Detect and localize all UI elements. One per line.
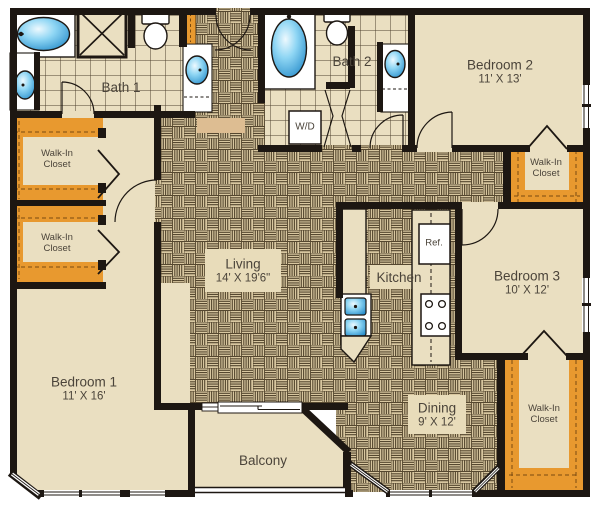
bedroom1-label: Bedroom 1 11' X 16' [51, 374, 117, 403]
refrigerator-label: Ref. [425, 238, 442, 249]
bathtub-2 [272, 19, 307, 77]
kitchen-label: Kitchen [376, 270, 421, 286]
bath1-label: Bath 1 [101, 80, 140, 96]
bathtub-1 [18, 18, 70, 51]
washer-dryer-label: W/D [295, 122, 314, 133]
threshold-strip [197, 118, 245, 133]
balcony-floor [188, 410, 348, 492]
balcony-label: Balcony [239, 453, 287, 469]
living-label: Living 14' X 19'6" [216, 256, 271, 285]
entry-threshold [216, 8, 250, 16]
closet-left-lower-label: Walk-In Closet [29, 233, 85, 255]
bedroom3-label: Bedroom 3 10' X 12' [494, 268, 560, 297]
closet-bedroom3-label: Walk-In Closet [516, 404, 572, 426]
tub-1-faucet [19, 32, 23, 36]
sink-bath2 [385, 51, 405, 78]
balcony-sliding-door [218, 402, 302, 413]
kitchen-counter-left [341, 209, 366, 295]
sink-bath1-left [15, 71, 35, 99]
hall-floor [345, 145, 510, 209]
dining-label: Dining 9' X 12' [418, 400, 456, 429]
toilet-2-bowl [327, 21, 348, 45]
bath2-label: Bath 2 [332, 54, 371, 70]
bedroom1-window-2 [130, 490, 165, 497]
sink-bath1-right [186, 56, 208, 84]
toilet-1-bowl [144, 23, 167, 49]
closet-left-upper-label: Walk-In Closet [29, 149, 85, 171]
closet-bedroom2-label: Walk-In Closet [518, 158, 574, 180]
stove [421, 294, 450, 336]
bedroom2-label: Bedroom 2 11' X 13' [467, 57, 533, 86]
floor-plan: Living 14' X 19'6" Kitchen Dining 9' X 1… [0, 0, 600, 507]
